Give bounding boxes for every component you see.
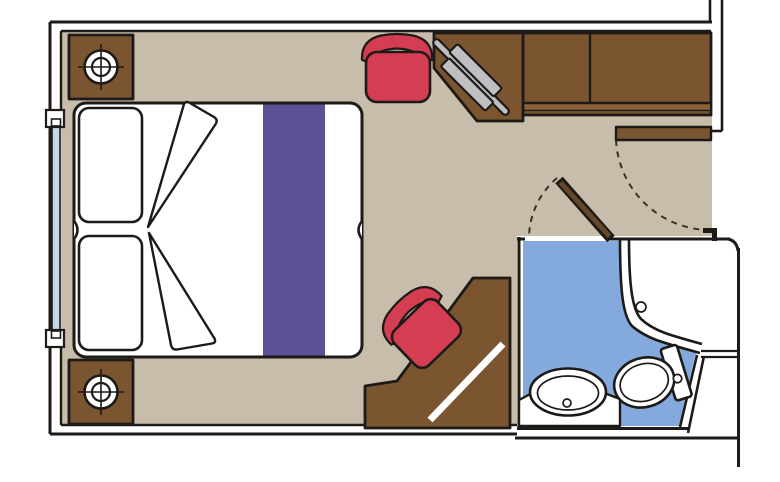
nightstand-top <box>69 35 133 99</box>
window-cap-bottom-notch <box>52 331 61 338</box>
washbasin-drain-icon <box>563 399 571 407</box>
wardrobe <box>523 33 711 115</box>
bed-runner <box>263 105 325 356</box>
cabin-floor-plan <box>0 0 780 482</box>
bathroom <box>517 236 740 467</box>
pillow-top <box>79 108 142 222</box>
window-glass <box>52 126 60 332</box>
shower-drain-icon <box>636 302 646 312</box>
pillow-bottom <box>79 236 142 350</box>
mattress-split-notch-left <box>74 221 78 239</box>
window-cap-top-notch <box>52 119 61 126</box>
floor-plan-canvas <box>0 0 780 482</box>
double-bed <box>74 102 362 357</box>
stool-seat <box>366 52 430 102</box>
entry-door-leaf <box>616 127 711 140</box>
nightstand-bottom <box>69 360 133 424</box>
mattress-split-notch-right <box>359 221 363 239</box>
stool <box>362 34 432 102</box>
